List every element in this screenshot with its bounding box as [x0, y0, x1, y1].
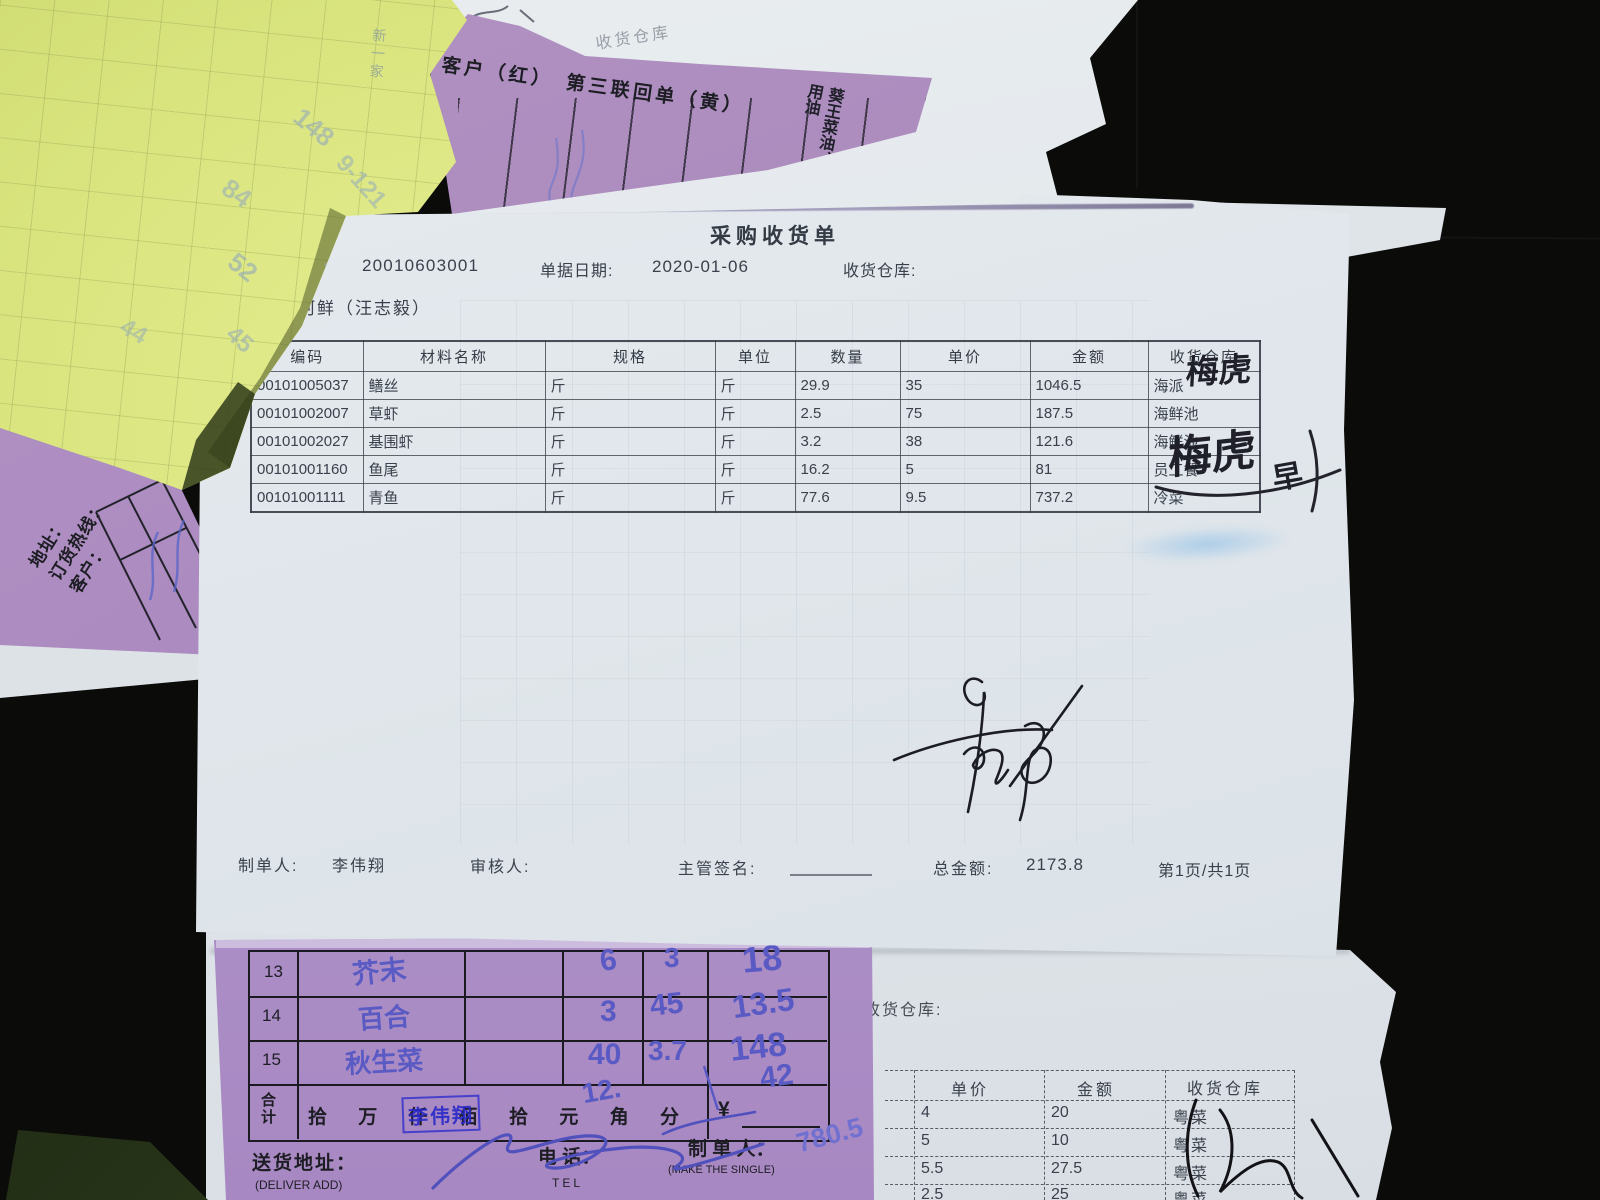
- cell-amount: 81: [1030, 456, 1148, 484]
- cell-spec: 斤: [545, 456, 715, 484]
- bottom-right-warehouse-label: 收货仓库:: [864, 996, 942, 1020]
- total-label: 合计: [261, 1092, 285, 1126]
- cell-spec: 斤: [545, 400, 715, 428]
- footer-total-value: 2173.8: [1026, 855, 1084, 875]
- corner-vertical-mark: 新一家: [366, 27, 390, 82]
- blue-signature-scribble: [425, 1108, 775, 1200]
- deliver-address-label: 送货地址：: [252, 1148, 357, 1175]
- col-header: 材料名称: [363, 341, 545, 372]
- background-seam-vertical: [1136, 0, 1138, 188]
- hand-total-mid: 12.: [580, 1072, 624, 1110]
- cell-name: 青鱼: [363, 484, 545, 513]
- cell-qty: 29.9: [795, 372, 900, 400]
- col-header: 数量: [795, 341, 900, 372]
- cell-code: 00101005037: [251, 372, 363, 400]
- cell-name: 鳝丝: [363, 372, 545, 400]
- hand-qty: 40: [588, 1038, 621, 1072]
- cell: 2.5: [921, 1186, 943, 1200]
- cell-unit: 斤: [715, 484, 795, 513]
- footer-checker-label: 审核人:: [470, 853, 530, 877]
- cell-unit: 斤: [715, 456, 795, 484]
- receipt-title: 采购收货单: [620, 220, 930, 250]
- cell: 5: [921, 1132, 930, 1150]
- cell-spec: 斤: [545, 372, 715, 400]
- cell-amount: 737.2: [1030, 484, 1148, 513]
- cell: 27.5: [1051, 1160, 1082, 1178]
- cell-code: 00101002007: [251, 400, 363, 428]
- doc-number: 20010603001: [362, 256, 479, 276]
- col-header: 金额: [1030, 341, 1148, 372]
- cell-name: 基围虾: [363, 428, 545, 456]
- footer-maker-label: 制单人:: [238, 852, 298, 876]
- cell-price: 5: [900, 456, 1030, 484]
- cell: 25: [1051, 1186, 1069, 1200]
- footer-page-indicator: 第1页/共1页: [1158, 857, 1251, 881]
- cell-qty: 16.2: [795, 456, 900, 484]
- hand-total: 42: [758, 1058, 796, 1096]
- table-header-row: 编码 材料名称 规格 单位 数量 单价 金额 收货仓库: [251, 341, 1260, 372]
- cell: 10: [1051, 1132, 1069, 1150]
- table-row: 00101001111 青鱼 斤 斤 77.6 9.5 737.2 冷菜: [251, 484, 1260, 513]
- cell-qty: 77.6: [795, 484, 900, 513]
- warehouse-label: 收货仓库:: [843, 257, 916, 281]
- table-row: 00101005037 鳝丝 斤 斤 29.9 35 1046.5 海派: [251, 372, 1260, 400]
- hand-price: 3.7: [648, 1035, 687, 1067]
- hand-note-row1: 梅虎: [1185, 342, 1253, 394]
- hand-item-name: 芥末: [350, 947, 408, 991]
- cell-amount: 1046.5: [1030, 372, 1148, 400]
- row-number: 15: [262, 1050, 281, 1070]
- cell-spec: 斤: [545, 484, 715, 513]
- date-label: 单据日期:: [540, 257, 613, 281]
- cell-unit: 斤: [715, 372, 795, 400]
- cell-name: 鱼尾: [363, 456, 545, 484]
- footer-sign-label: 主管签名:: [678, 855, 756, 879]
- sign-underline: [790, 874, 872, 876]
- hand-qty: 3: [600, 995, 617, 1029]
- footer-total-label: 总金额:: [933, 855, 993, 879]
- approval-signature-scribble: [882, 660, 1102, 835]
- col-header: 单位: [715, 341, 795, 372]
- cell-code: 00101002027: [251, 428, 363, 456]
- hand-price: 3: [664, 942, 680, 974]
- hand-item-name: 百合: [357, 996, 411, 1037]
- table-row: 00101001160 鱼尾 斤 斤 16.2 5 81 员工餐: [251, 456, 1260, 484]
- col-header: 单价: [900, 341, 1030, 372]
- col-header-amount: 金额: [1077, 1076, 1115, 1100]
- cell-code: 00101001160: [251, 456, 363, 484]
- cell-qty: 3.2: [795, 428, 900, 456]
- doc-date: 2020-01-06: [652, 257, 749, 277]
- cell-spec: 斤: [545, 428, 715, 456]
- table-row: 00101002027 基围虾 斤 斤 3.2 38 121.6 海鲜池: [251, 428, 1260, 456]
- table-row: 00101002007 草虾 斤 斤 2.5 75 187.5 海鲜池: [251, 400, 1260, 428]
- col-header: 规格: [545, 341, 715, 372]
- cell-price: 35: [900, 372, 1030, 400]
- cell: 4: [921, 1104, 930, 1122]
- items-table: 编码 材料名称 规格 单位 数量 单价 金额 收货仓库 00101005037 …: [250, 340, 1261, 513]
- row-number: 13: [264, 962, 283, 982]
- hand-item-name: 秋生菜: [344, 1040, 424, 1081]
- black-signature-scribble: [1166, 1096, 1376, 1200]
- cell-unit: 斤: [715, 428, 795, 456]
- cell-amount: 187.5: [1030, 400, 1148, 428]
- cell-qty: 2.5: [795, 400, 900, 428]
- row-number: 14: [262, 1006, 281, 1026]
- cell: 20: [1051, 1104, 1069, 1122]
- cell-price: 9.5: [900, 484, 1030, 513]
- cell: 5.5: [921, 1160, 943, 1178]
- deliver-address-sub: (DELIVER ADD): [255, 1178, 342, 1192]
- footer-maker-name: 李伟翔: [332, 852, 386, 876]
- ink-flourish-strokes: [1150, 425, 1350, 520]
- photo-of-receipts: 收货仓库 客户（红） 第三联回单（黄） 葵王菜油、 种食用油 地址： 订货热线：…: [0, 0, 1600, 1200]
- cell-code: 00101001111: [251, 484, 363, 513]
- hand-price: 45: [648, 986, 685, 1023]
- cell-price: 75: [900, 400, 1030, 428]
- cell-amount: 121.6: [1030, 428, 1148, 456]
- cell-name: 草虾: [363, 400, 545, 428]
- col-header-price: 单价: [951, 1076, 989, 1100]
- supplier-line: 河鲜（汪志毅）: [298, 294, 431, 319]
- cell-price: 38: [900, 428, 1030, 456]
- cell-unit: 斤: [715, 400, 795, 428]
